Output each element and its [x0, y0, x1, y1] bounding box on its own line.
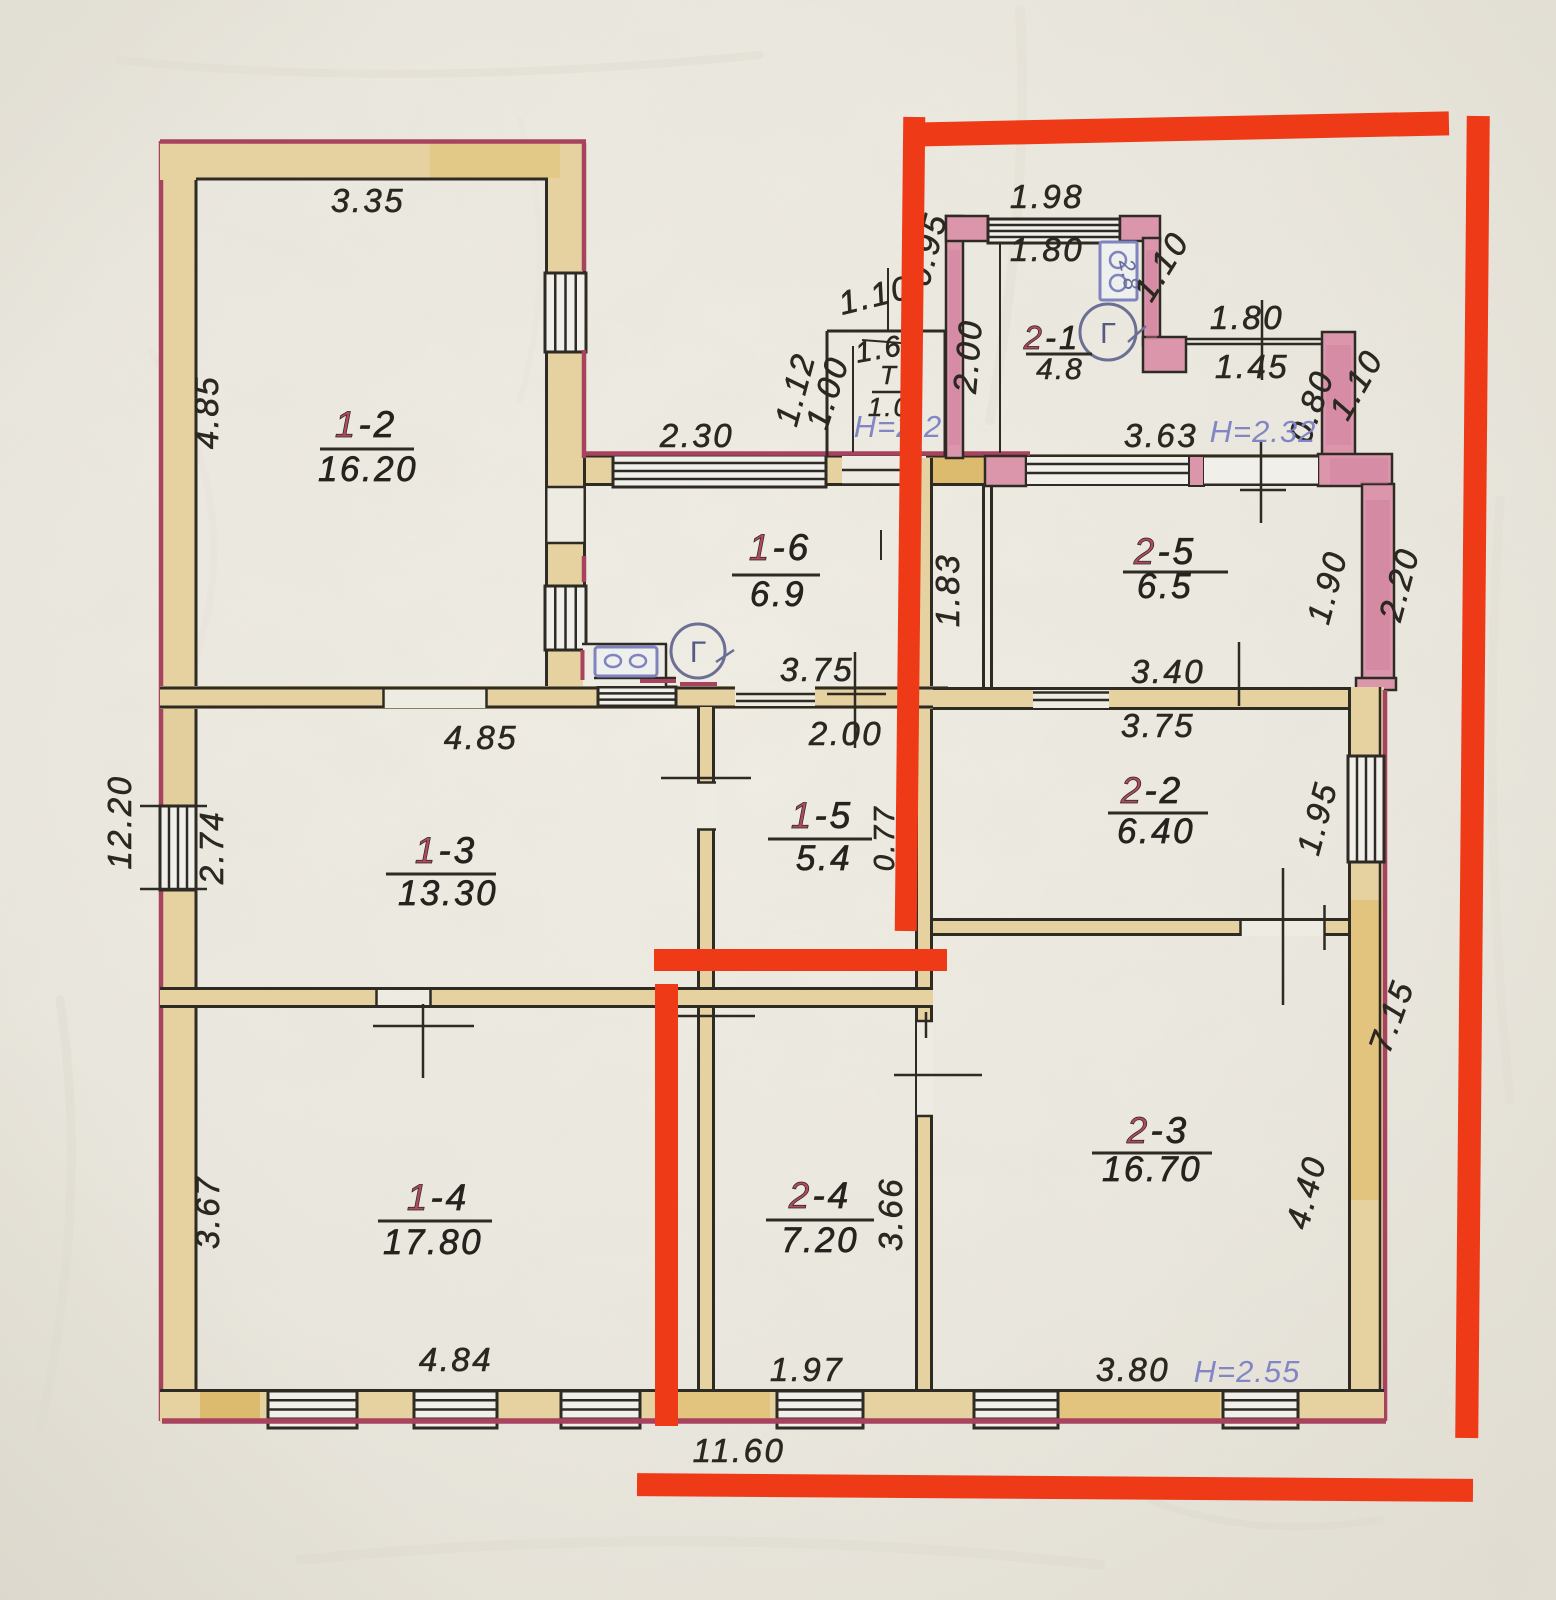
svg-text:2-2: 2-2 [1120, 770, 1183, 811]
svg-text:4.85: 4.85 [188, 375, 225, 449]
svg-text:3.75: 3.75 [780, 651, 854, 688]
svg-text:1-3: 1-3 [415, 830, 477, 871]
svg-text:2.30: 2.30 [659, 417, 734, 454]
svg-text:2.74: 2.74 [193, 810, 230, 885]
svg-text:1-2: 1-2 [335, 404, 397, 445]
svg-text:3.67: 3.67 [189, 1175, 226, 1249]
svg-text:1.97: 1.97 [770, 1351, 844, 1388]
svg-text:3.66: 3.66 [872, 1177, 909, 1251]
svg-text:2-5: 2-5 [1133, 531, 1196, 572]
svg-text:1-5: 1-5 [791, 795, 853, 836]
svg-text:3.35: 3.35 [331, 182, 405, 219]
svg-text:17.80: 17.80 [383, 1223, 483, 1262]
svg-text:16.70: 16.70 [1102, 1150, 1202, 1189]
svg-text:Н=2.32: Н=2.32 [1210, 414, 1317, 449]
svg-text:4.8: 4.8 [1036, 353, 1084, 386]
svg-text:1.45: 1.45 [1215, 348, 1289, 385]
svg-text:2-3: 2-3 [1126, 1110, 1189, 1151]
svg-text:3.40: 3.40 [1131, 653, 1205, 690]
svg-text:16.20: 16.20 [318, 450, 418, 489]
svg-text:Г: Г [690, 636, 706, 669]
svg-text:2.00: 2.00 [946, 317, 989, 395]
svg-text:1-6: 1-6 [749, 527, 811, 568]
svg-text:3.63: 3.63 [1124, 417, 1198, 454]
svg-text:2-4: 2-4 [788, 1175, 851, 1216]
svg-text:1.83: 1.83 [929, 553, 966, 627]
svg-text:5.4: 5.4 [796, 839, 852, 878]
svg-text:2.00: 2.00 [808, 715, 883, 752]
svg-text:6.40: 6.40 [1117, 812, 1195, 851]
svg-text:Н=2.2: Н=2.2 [854, 409, 943, 444]
svg-text:6.9: 6.9 [750, 575, 806, 614]
svg-text:4.85: 4.85 [444, 719, 518, 756]
svg-text:3.80: 3.80 [1096, 1351, 1170, 1388]
svg-text:12.20: 12.20 [101, 774, 138, 869]
svg-text:7.20: 7.20 [781, 1221, 859, 1260]
svg-text:Н=2.55: Н=2.55 [1194, 1354, 1301, 1389]
svg-text:11.60: 11.60 [693, 1432, 786, 1469]
svg-text:Г: Г [1100, 318, 1116, 350]
svg-text:1-4: 1-4 [407, 1177, 469, 1218]
svg-text:1.80: 1.80 [1010, 231, 1084, 268]
svg-text:2-1: 2-1 [1023, 319, 1081, 356]
svg-text:4.84: 4.84 [419, 1341, 493, 1378]
svg-text:Т: Т [880, 360, 898, 390]
svg-text:6.5: 6.5 [1137, 567, 1193, 606]
svg-text:3.75: 3.75 [1121, 707, 1195, 744]
svg-text:1.98: 1.98 [1010, 178, 1084, 215]
svg-text:1.80: 1.80 [1210, 299, 1284, 336]
svg-text:13.30: 13.30 [398, 874, 498, 913]
